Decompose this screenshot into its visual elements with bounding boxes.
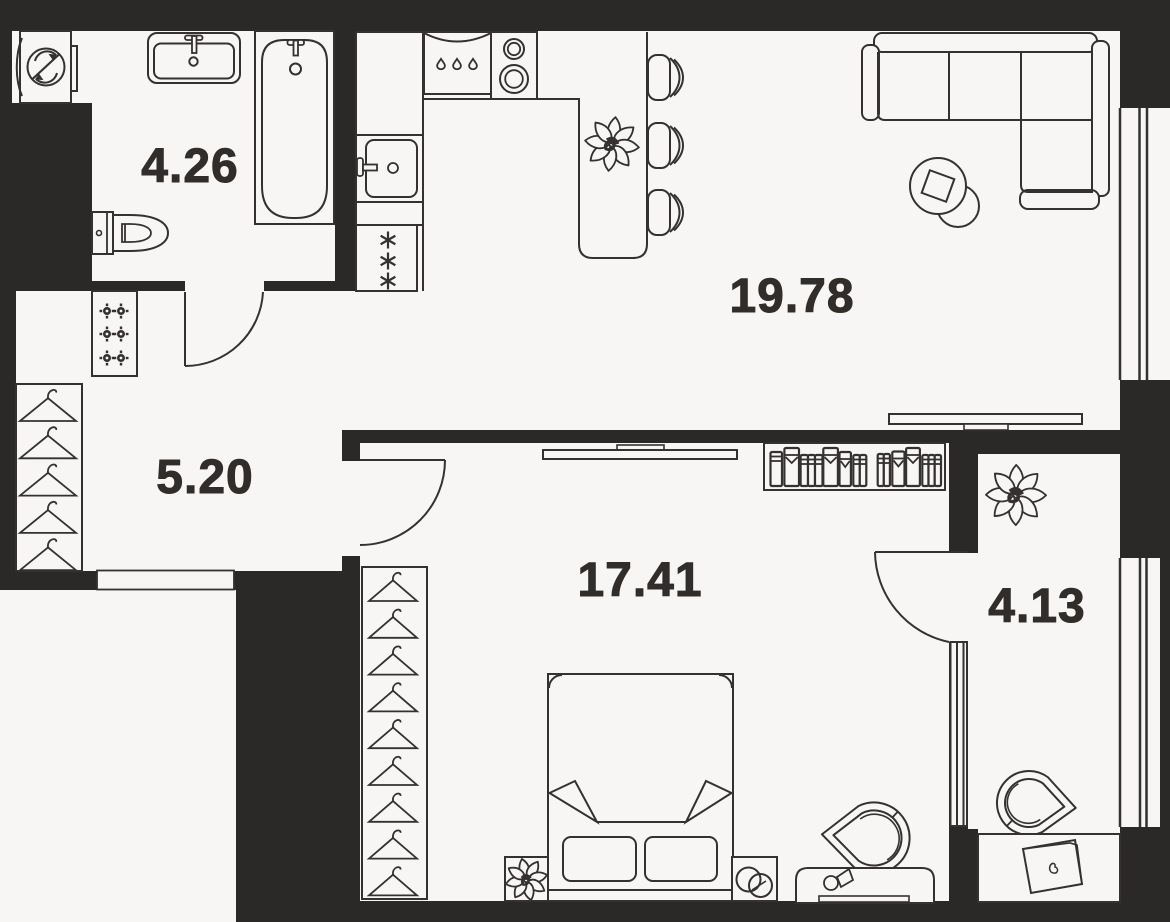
svg-text:4.26: 4.26 (141, 140, 238, 193)
svg-text:17.41: 17.41 (577, 554, 702, 607)
svg-text:19.78: 19.78 (729, 270, 854, 323)
svg-text:4.13: 4.13 (988, 580, 1085, 633)
svg-text:5.20: 5.20 (156, 451, 253, 504)
